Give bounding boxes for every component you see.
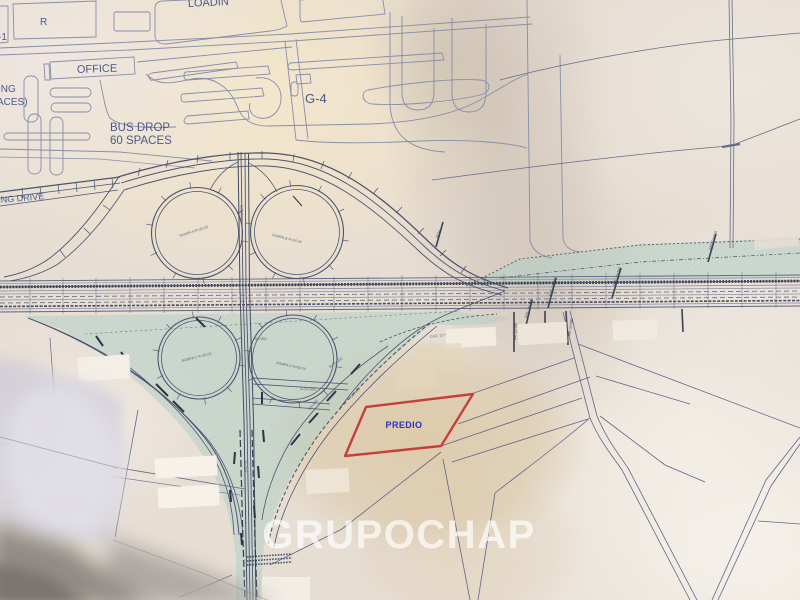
- svg-text:04+800: 04+800: [255, 337, 267, 341]
- svg-text:PREDIO: PREDIO: [386, 420, 423, 430]
- svg-text:RAMPA 2: RAMPA 2: [239, 205, 244, 220]
- svg-text:ACES): ACES): [0, 97, 28, 108]
- svg-text:-1: -1: [0, 32, 7, 43]
- svg-text:BUS DROP: BUS DROP: [110, 122, 170, 134]
- svg-text:ING: ING: [0, 84, 16, 95]
- svg-text:OFFICE: OFFICE: [77, 63, 118, 76]
- svg-text:R: R: [40, 17, 47, 28]
- svg-text:A-04+300: A-04+300: [300, 387, 316, 392]
- svg-text:KM 12+280: KM 12+280: [513, 322, 518, 340]
- svg-text:GRUPOCHAP: GRUPOCHAP: [262, 513, 536, 557]
- svg-text:G-4: G-4: [305, 91, 327, 106]
- svg-text:60 SPACES: 60 SPACES: [110, 135, 172, 147]
- svg-text:00+200: 00+200: [243, 460, 247, 472]
